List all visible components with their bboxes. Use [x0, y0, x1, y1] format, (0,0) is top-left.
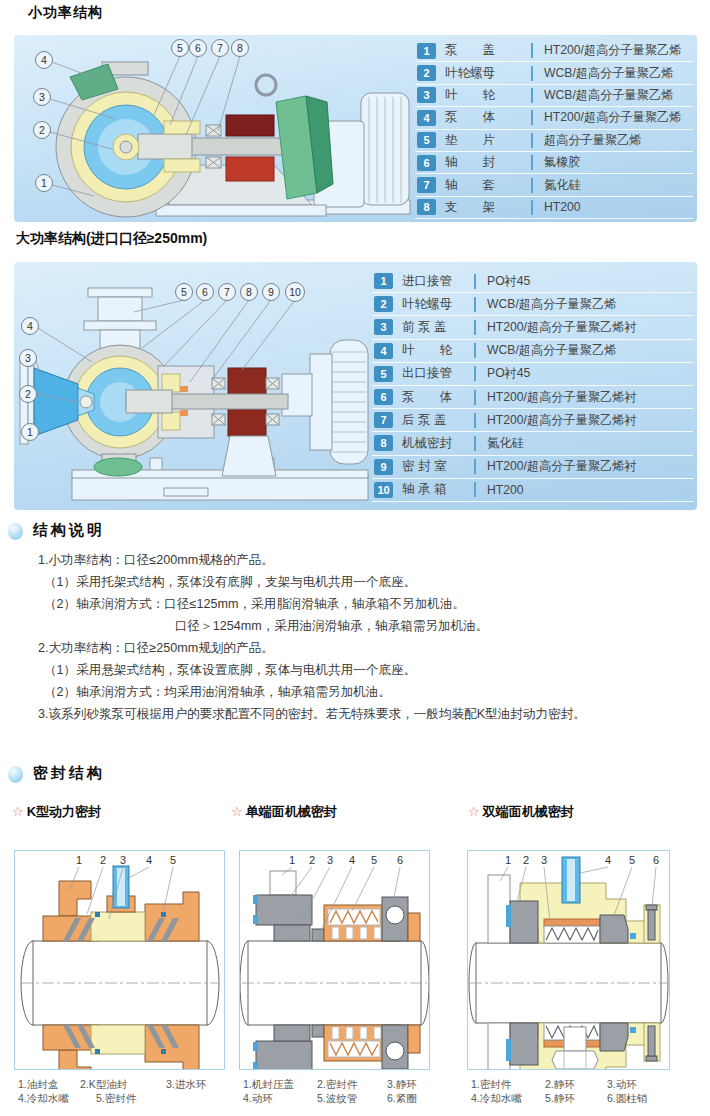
column-divider: [474, 436, 476, 451]
part-name: 泵 体: [445, 109, 523, 126]
caption-item: 5.静环: [545, 1091, 607, 1105]
column-divider: [474, 274, 476, 289]
part-name: 进口接管: [402, 273, 466, 290]
part-number-chip: 7: [374, 412, 393, 428]
part-number-chip: 8: [374, 435, 393, 451]
note-line: （2）轴承润滑方式：均采用油润滑轴承，轴承箱需另加机油。: [38, 681, 703, 703]
svg-text:9: 9: [268, 286, 274, 298]
column-divider: [474, 390, 476, 405]
svg-text:1: 1: [41, 177, 47, 189]
part-number-chip: 3: [417, 87, 436, 103]
callout-numbers: 1 2 3 4 5 6: [505, 854, 659, 866]
star-icon: ☆: [12, 804, 24, 819]
part-name: 前 泵 盖: [402, 319, 466, 336]
part-material: WCB/超高分子量聚乙烯: [487, 296, 616, 313]
part-number-chip: 9: [374, 459, 393, 475]
svg-text:6: 6: [653, 854, 659, 866]
svg-text:2: 2: [100, 854, 106, 866]
part-name: 叶轮螺母: [402, 296, 466, 313]
table-row: 7轴 套氮化硅: [415, 174, 693, 196]
part-number-chip: 4: [417, 110, 436, 126]
part-number-chip: 5: [374, 366, 393, 382]
table-row: 5出口接管PO衬45: [372, 363, 693, 386]
part-name: 垫 片: [445, 132, 523, 149]
table-row: 1泵 盖HT200/超高分子量聚乙烯: [415, 40, 693, 62]
part-material: 氟橡胶: [544, 154, 581, 171]
part-material: HT200/超高分子量聚乙烯衬: [487, 389, 637, 406]
part-name: 轴 承 箱: [402, 481, 466, 498]
svg-text:8: 8: [246, 286, 252, 298]
caption-item: 4.冷却水嘴: [471, 1091, 545, 1105]
column-divider: [474, 320, 476, 335]
svg-text:1: 1: [27, 426, 33, 438]
part-material: HT200: [487, 483, 524, 497]
large-pump-diagram: 5 6 7 8 9 10 4 3 2 1: [14, 262, 374, 510]
seal-type-title-single: ☆单端面机械密封: [231, 803, 337, 821]
small-power-parts-table: 1泵 盖HT200/超高分子量聚乙烯 2叶轮螺母WCB/超高分子量聚乙烯 3叶 …: [415, 40, 693, 219]
note-line: （2）轴承润滑方式：口径≤125mm，采用脂润滑轴承，轴承箱不另加机油。: [38, 593, 703, 615]
caption-item: 1.密封件: [471, 1077, 545, 1091]
part-number-chip: 2: [374, 296, 393, 312]
part-number-chip: 4: [374, 343, 393, 359]
part-material: 氮化硅: [544, 177, 581, 194]
table-row: 6轴 封氟橡胶: [415, 152, 693, 174]
column-divider: [474, 343, 476, 358]
svg-text:8: 8: [237, 42, 243, 54]
svg-text:7: 7: [217, 42, 223, 54]
table-row: 3前 泵 盖HT200/超高分子量聚乙烯衬: [372, 316, 693, 339]
part-material: PO衬45: [487, 273, 530, 290]
section-bullet-icon: [8, 523, 23, 540]
note-line: 1.小功率结构：口径≤200mm规格的产品。: [38, 549, 703, 571]
seal-type-title-double: ☆双端面机械密封: [468, 803, 574, 821]
part-name: 支 架: [445, 199, 523, 216]
table-row: 2叶轮螺母WCB/超高分子量聚乙烯: [372, 293, 693, 316]
caption-item: 3.动环: [607, 1077, 637, 1091]
svg-text:5: 5: [170, 854, 176, 866]
svg-text:4: 4: [605, 854, 611, 866]
note-line: （1）采用悬架式结构，泵体设置底脚，泵体与电机共用一个底座。: [38, 659, 703, 681]
catalog-page: 小功率结构: [0, 0, 710, 1116]
structure-notes: 1.小功率结构：口径≤200mm规格的产品。 （1）采用托架式结构，泵体没有底脚…: [38, 549, 703, 725]
part-material: 超高分子量聚乙烯: [544, 132, 642, 149]
caption-item: 4.冷却水嘴: [18, 1091, 96, 1105]
table-row: 4叶 轮WCB/超高分子量聚乙烯: [372, 340, 693, 363]
svg-text:3: 3: [541, 854, 547, 866]
column-divider: [531, 66, 533, 81]
table-row: 8机械密封氮化硅: [372, 432, 693, 455]
part-number-chip: 2: [417, 65, 436, 81]
svg-text:4: 4: [146, 854, 152, 866]
table-row: 1进口接管PO衬45: [372, 270, 693, 293]
small-power-panel: 5 6 7 8 4 3 2 1 1泵 盖HT200/超高分子量聚乙烯 2叶轮螺母…: [14, 35, 697, 222]
part-name: 后 泵 盖: [402, 412, 466, 429]
column-divider: [531, 133, 533, 148]
part-name: 密 封 室: [402, 458, 466, 475]
svg-text:5: 5: [177, 42, 183, 54]
k-seal-panel: 1 2 3 4 5: [14, 850, 225, 1070]
table-row: 6泵 体HT200/超高分子量聚乙烯衬: [372, 386, 693, 409]
caption-item: 2.K型油封: [80, 1077, 166, 1091]
svg-text:4: 4: [349, 854, 355, 866]
svg-text:2: 2: [39, 124, 45, 136]
svg-text:2: 2: [309, 854, 315, 866]
caption-item: 3.进水环: [166, 1077, 206, 1091]
caption-item: 5.密封件: [96, 1091, 136, 1105]
single-seal-diagram: 1 2 3 4 5 6: [240, 851, 429, 1069]
cooling-nozzle: [107, 866, 135, 912]
part-material: HT200/超高分子量聚乙烯: [544, 109, 681, 126]
svg-text:3: 3: [327, 854, 333, 866]
part-number-chip: 1: [374, 273, 393, 289]
notes-section-title: 结构说明: [33, 521, 105, 540]
svg-text:5: 5: [181, 286, 187, 298]
casing-foot: [94, 454, 142, 476]
column-divider: [531, 200, 533, 215]
small-pump-diagram: 5 6 7 8 4 3 2 1: [14, 35, 414, 222]
part-name: 出口接管: [402, 365, 466, 382]
svg-text:5: 5: [629, 854, 635, 866]
part-material: HT200/超高分子量聚乙烯: [544, 42, 681, 59]
part-name: 叶轮螺母: [445, 65, 523, 82]
column-divider: [474, 482, 476, 497]
section-title-small-power: 小功率结构: [28, 4, 103, 22]
svg-text:6: 6: [202, 286, 208, 298]
seal-type-title-k: ☆K型动力密封: [12, 803, 101, 821]
lifting-eye-icon: [256, 75, 276, 95]
caption-item: 2.密封件: [317, 1077, 387, 1091]
table-row: 5垫 片超高分子量聚乙烯: [415, 130, 693, 152]
section-title-large-power: 大功率结构(进口口径≥250mm): [16, 230, 207, 248]
double-seal-caption: 1.密封件 2.静环 3.动环 4.冷却水嘴 5.静环 6.圆柱销: [471, 1077, 647, 1105]
part-material: HT200/超高分子量聚乙烯衬: [487, 458, 637, 475]
part-name: 轴 套: [445, 177, 523, 194]
caption-item: 3.静环: [387, 1077, 417, 1091]
column-divider: [531, 43, 533, 58]
svg-text:2: 2: [523, 854, 529, 866]
part-name: 机械密封: [402, 435, 466, 452]
part-name: 叶 轮: [445, 87, 523, 104]
part-material: WCB/超高分子量聚乙烯: [544, 87, 673, 104]
caption-item: 2.静环: [545, 1077, 607, 1091]
part-material: PO衬45: [487, 365, 530, 382]
column-divider: [531, 88, 533, 103]
section-bullet-icon: [8, 766, 23, 783]
part-number-chip: 8: [417, 199, 436, 215]
part-name: 叶 轮: [402, 342, 466, 359]
k-seal-diagram: 1 2 3 4 5: [15, 851, 224, 1069]
table-row: 8支 架HT200: [415, 197, 693, 219]
part-number-chip: 1: [417, 43, 436, 59]
svg-text:4: 4: [41, 54, 47, 66]
single-seal-caption: 1.机封压盖 2.密封件 3.静环 4.动环 5.波纹管 6.紧圈: [243, 1077, 417, 1105]
svg-text:1: 1: [76, 854, 82, 866]
inlet-stack: [84, 288, 156, 352]
caption-item: 4.动环: [243, 1091, 317, 1105]
table-row: 9密 封 室HT200/超高分子量聚乙烯衬: [372, 456, 693, 479]
column-divider: [474, 297, 476, 312]
part-name: 泵 体: [402, 389, 466, 406]
caption-item: 1.机封压盖: [243, 1077, 317, 1091]
k-seal-caption: 1.油封盒 2.K型油封 3.进水环 4.冷却水嘴 5.密封件: [18, 1077, 206, 1105]
part-material: 氮化硅: [487, 435, 524, 452]
caption-item: 6.圆柱销: [607, 1091, 647, 1105]
part-material: HT200/超高分子量聚乙烯衬: [487, 412, 637, 429]
note-line: 3.该系列砂浆泵可根据用户的要求配置不同的密封。若无特殊要求，一般均装配K型油封…: [38, 703, 703, 725]
part-number-chip: 7: [417, 177, 436, 193]
single-seal-panel: 1 2 3 4 5 6: [239, 850, 430, 1070]
part-material: HT200: [544, 200, 581, 214]
double-seal-panel: 1 2 3 4 5 6: [467, 850, 670, 1070]
svg-text:3: 3: [25, 352, 31, 364]
part-number-chip: 6: [374, 389, 393, 405]
part-material: HT200/超高分子量聚乙烯衬: [487, 319, 637, 336]
caption-item: 1.油封盒: [18, 1077, 80, 1091]
svg-text:10: 10: [289, 286, 301, 298]
part-number-chip: 5: [417, 132, 436, 148]
large-power-parts-table: 1进口接管PO衬45 2叶轮螺母WCB/超高分子量聚乙烯 3前 泵 盖HT200…: [372, 270, 693, 502]
svg-text:4: 4: [27, 320, 33, 332]
svg-text:3: 3: [120, 854, 126, 866]
svg-text:7: 7: [224, 286, 230, 298]
star-icon: ☆: [231, 804, 243, 819]
note-line: （1）采用托架式结构，泵体没有底脚，支架与电机共用一个底座。: [38, 571, 703, 593]
caption-item: 5.波纹管: [317, 1091, 387, 1105]
table-row: 4泵 体HT200/超高分子量聚乙烯: [415, 107, 693, 129]
svg-text:1: 1: [505, 854, 511, 866]
single-seal-assembly: [253, 871, 420, 941]
table-row: 10轴 承 箱HT200: [372, 479, 693, 502]
star-icon: ☆: [468, 804, 480, 819]
svg-text:6: 6: [397, 854, 403, 866]
caption-item: 6.紧圈: [387, 1091, 417, 1105]
note-line: 口径＞1254mm，采用油润滑轴承，轴承箱需另加机油。: [38, 615, 703, 637]
svg-text:5: 5: [371, 854, 377, 866]
double-seal-diagram: 1 2 3 4 5 6: [468, 851, 669, 1069]
svg-text:6: 6: [195, 42, 201, 54]
table-row: 7后 泵 盖HT200/超高分子量聚乙烯衬: [372, 409, 693, 432]
svg-text:3: 3: [39, 91, 45, 103]
column-divider: [531, 178, 533, 193]
seals-section-title: 密封结构: [33, 764, 105, 783]
table-row: 2叶轮螺母WCB/超高分子量聚乙烯: [415, 62, 693, 84]
svg-text:2: 2: [25, 388, 31, 400]
part-name: 泵 盖: [445, 42, 523, 59]
part-material: WCB/超高分子量聚乙烯: [487, 342, 616, 359]
note-line: 2.大功率结构：口径≥250mm规划的产品。: [38, 637, 703, 659]
large-power-panel: 5 6 7 8 9 10 4 3 2 1 1进口接管PO衬45 2叶轮螺母WCB…: [14, 262, 697, 510]
column-divider: [531, 110, 533, 125]
motor-outline: [282, 340, 368, 464]
part-number-chip: 6: [417, 155, 436, 171]
bearing-box-leg: [222, 436, 276, 476]
part-name: 轴 封: [445, 154, 523, 171]
part-material: WCB/超高分子量聚乙烯: [544, 65, 673, 82]
part-number-chip: 3: [374, 319, 393, 335]
cooling-nozzle: [562, 857, 580, 903]
part-number-chip: 10: [374, 482, 393, 498]
column-divider: [474, 413, 476, 428]
column-divider: [531, 155, 533, 170]
callout-numbers: 1 2 3 4 5: [76, 854, 176, 866]
column-divider: [474, 459, 476, 474]
column-divider: [474, 366, 476, 381]
callout-numbers: 1 2 3 4 5 6: [289, 854, 403, 866]
svg-text:1: 1: [289, 854, 295, 866]
table-row: 3叶 轮WCB/超高分子量聚乙烯: [415, 85, 693, 107]
